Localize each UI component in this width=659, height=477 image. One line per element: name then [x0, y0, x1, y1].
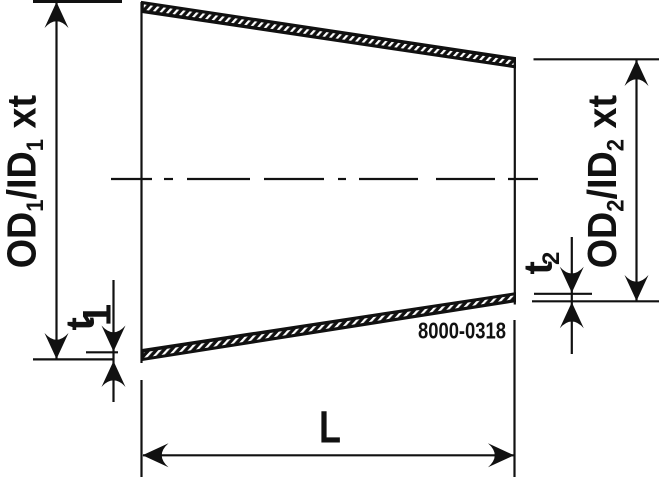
svg-text:OD1/ID1 xt: OD1/ID1 xt [0, 95, 48, 268]
svg-text:t1: t1 [59, 304, 120, 331]
svg-text:t2: t2 [517, 252, 566, 275]
svg-text:8000-0318: 8000-0318 [418, 318, 506, 344]
svg-text:L: L [319, 402, 341, 453]
svg-text:OD2/ID2 xt: OD2/ID2 xt [580, 95, 629, 268]
